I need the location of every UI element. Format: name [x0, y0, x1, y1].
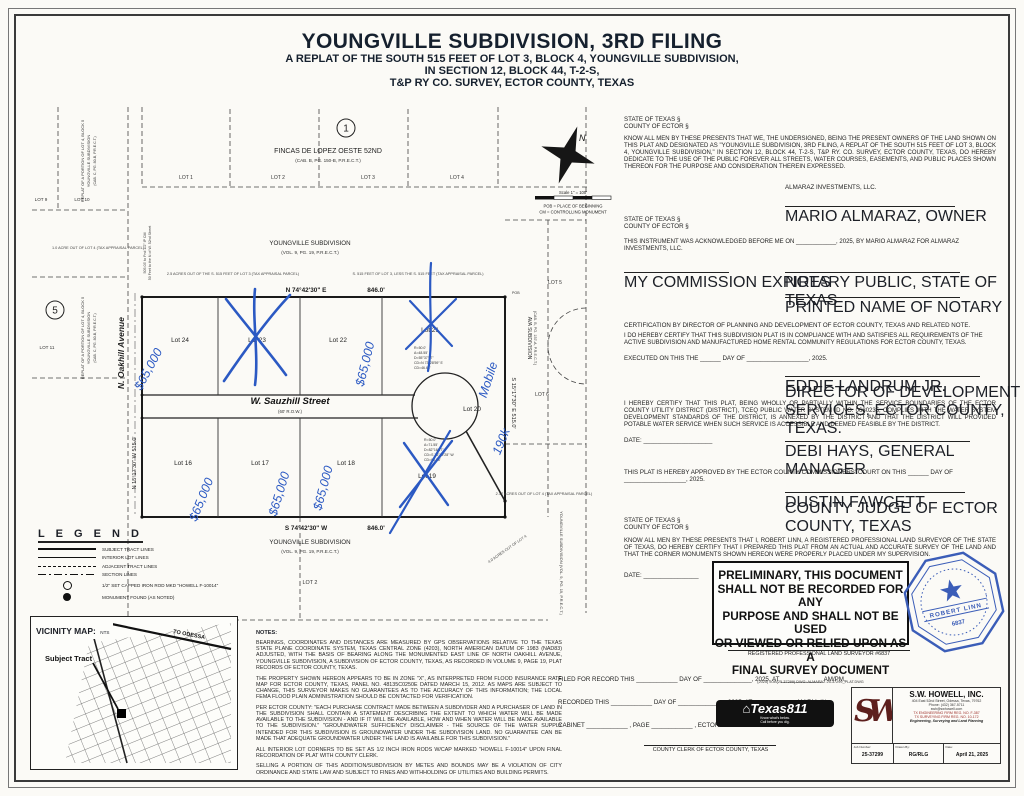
vicinity-title: VICINITY MAP:: [36, 626, 96, 636]
edge-note-2: 50 Feet to the N of W. 52nd Street: [148, 226, 152, 281]
bearing-left: N 15°17'30" W 515.0': [132, 436, 138, 489]
replat-left-upper: REPLAT OF A PORTION OF LOT 4, BLOCK 5 YO…: [80, 119, 97, 202]
adj-lot-5: LOT 5: [548, 280, 562, 286]
planning-executed: EXECUTED ON THIS THE ______ DAY OF _____…: [624, 355, 828, 362]
firm-drawn-label: Drawn By:: [896, 745, 910, 749]
bearing-top: N 74°42'30" E: [286, 286, 328, 294]
handwritten-price-190k: 190k: [490, 426, 513, 457]
bearing-right: S 15°17'30" E 515.0': [510, 377, 516, 428]
landrum-signature-line: [785, 376, 980, 377]
pob-marker-label: POB: [512, 291, 520, 295]
youngville-top-label: YOUNGVILLE SUBDIVISION: [269, 240, 350, 247]
note-217ac: 2.17 ACRES OUT OF LOT 4 (TAX APPRAISAL P…: [496, 492, 593, 496]
page-subtitle-2: IN SECTION 12, BLOCK 44, T-2-S,: [40, 65, 984, 77]
dist-bottom: 846.0': [367, 525, 385, 532]
note-paragraph-5: SELLING A PORTION OF THIS ADDITION/SUBDI…: [256, 763, 562, 775]
fincas-recording: (CAB. B, PG. 150-B, P.R.E.C.T.): [295, 158, 361, 163]
scale-bar: Scale 1" = 100': [535, 190, 611, 200]
preliminary-line-3: PURPOSE AND SHALL NOT BE USED: [714, 610, 907, 637]
lot-18-label: Lot 18: [337, 460, 355, 467]
clerk-signature-line: [644, 745, 776, 746]
street-oakhill-label: N. Oakhill Avenue: [116, 317, 126, 389]
firm-job-label: Job Number:: [854, 745, 872, 749]
note-1ac: 1.0 ACRE OUT OF LOT 4 (TAX APPRAISAL PAR…: [52, 246, 145, 250]
planning-cert-title: CERTIFICATION BY DIRECTOR OF PLANNING AN…: [624, 322, 996, 329]
bearing-bottom: S 74°42'30" W: [285, 524, 328, 532]
svg-text:A=71.55': A=71.55': [424, 443, 438, 447]
lot-22-label: Lot 22: [329, 337, 347, 344]
note-25ac: 2.5 ACRES OUT OF THE S. 515 FEET OF LOT …: [167, 272, 300, 276]
note-paragraph-2: THE PROPERTY SHOWN HEREON APPEARS TO BE …: [256, 676, 562, 701]
firm-date-cell: Date: April 21, 2025: [944, 744, 1000, 764]
legend: L E G E N D SUBJECT TRACT LINES INTERIOR…: [38, 524, 243, 601]
lot-16-label: Lot 16: [174, 460, 192, 467]
svg-text:YOUNGVILLE SUBDIVISION: YOUNGVILLE SUBDIVISION: [86, 312, 91, 365]
preliminary-stamp-box: PRELIMINARY, THIS DOCUMENT SHALL NOT BE …: [712, 561, 909, 645]
dedication-state: STATE OF TEXAS §: [624, 116, 680, 123]
seal-number: 6837: [951, 619, 966, 628]
svg-text:D=82°16'47": D=82°16'47": [424, 448, 444, 452]
legend-line-subject: [38, 548, 96, 550]
handwritten-price-lot24: $65,000: [131, 346, 165, 393]
judge-signature-line: [785, 492, 965, 493]
lot-24-label: Lot 24: [171, 337, 189, 344]
swh-logo-text: SWH: [854, 694, 893, 729]
svg-text:R=50.0': R=50.0': [414, 346, 426, 350]
vicinity-map-drawing: TO ODESSA Subject Tract: [31, 617, 234, 766]
planning-cert-body: I DO HEREBY CERTIFY THAT THIS SUBDIVISIO…: [624, 333, 996, 347]
clerk-label: COUNTY CLERK OF ECTOR COUNTY, TEXAS: [628, 747, 793, 753]
adj-lot-9: LOT 9: [35, 197, 48, 202]
owner-company: ALMARAZ INVESTMENTS, LLC.: [785, 184, 876, 191]
handwritten-price-lot22: $65,000: [353, 340, 378, 388]
svg-text:(CAB. C, PG. 80-B, P.R.E.C.T.): (CAB. C, PG. 80-B, P.R.E.C.T.): [93, 136, 97, 185]
subject-tract-marker: [117, 709, 126, 718]
pob-definition: POB = PLACE OF BEGINNING: [544, 204, 603, 209]
firm-name: S.W. HOWELL, INC.: [893, 690, 1000, 699]
legend-open-circle-icon: [63, 581, 72, 590]
page-subtitle-3: T&P RY CO. SURVEY, ECTOR COUNTY, TEXAS: [40, 77, 984, 89]
youngville-top-recording: (VOL. 9, PG. 19, P.R.E.C.T.): [281, 250, 339, 255]
notes-title: NOTES:: [256, 630, 562, 636]
subject-tract-label: Subject Tract: [45, 654, 93, 663]
handwritten-mobile: Mobile: [476, 360, 501, 399]
vicinity-map: TO ODESSA Subject Tract VICINITY MAP: NT…: [30, 616, 238, 770]
north-arrow-icon: N: [532, 118, 604, 192]
dist-top: 846.0': [367, 287, 385, 294]
svg-text:REPLAT OF A PORTION OF LOT 4,: REPLAT OF A PORTION OF LOT 4, BLOCK 5: [80, 119, 85, 202]
firm-date-label: Date:: [946, 745, 953, 749]
notary-acknowledgment: THIS INSTRUMENT WAS ACKNOWLEDGED BEFORE …: [624, 239, 996, 253]
dedication-body: KNOW ALL MEN BY THESE PRESENTS THAT WE, …: [624, 136, 996, 171]
lot-17-label: Lot 17: [251, 460, 269, 467]
legend-filled-circle-icon: [63, 593, 71, 601]
youngville-right-vert: YOUNGVILLE SUBDIVISION (VOL. 9, PG. 19, …: [559, 511, 564, 615]
vicinity-title-row: VICINITY MAP: NTS: [36, 621, 113, 639]
surveyor-seal: ROBERT LINN 6837: [901, 549, 1007, 655]
lot-20-label: Lot 20: [463, 406, 481, 413]
svg-text:Scale 1" = 100': Scale 1" = 100': [559, 190, 587, 195]
firm-logo: SWH: [852, 688, 893, 743]
dedication-county: COUNTY OF ECTOR §: [624, 123, 689, 130]
preliminary-line-1: PRELIMINARY, THIS DOCUMENT: [714, 569, 907, 583]
crossout-lot23-v: [254, 289, 256, 385]
page-subtitle-1: A REPLAT OF THE SOUTH 515 FEET OF LOT 3,…: [40, 53, 984, 65]
firm-job-cell: Job Number: 25-37299: [852, 744, 894, 764]
owner-signature-line: [785, 206, 955, 207]
firm-title-block: SWH S.W. HOWELL, INC. 404 East 52nd Stre…: [851, 687, 1001, 764]
title-block: YOUNGVILLE SUBDIVISION, 3RD FILING A REP…: [40, 30, 984, 89]
note-paragraph-4: ALL INTERIOR LOT CORNERS TO BE SET AS 1/…: [256, 747, 562, 759]
surveyor-reg-label: REGISTERED PROFESSIONAL LAND SURVEYOR #6…: [728, 651, 910, 657]
notary-state: STATE OF TEXAS §: [624, 216, 680, 223]
legend-label-subject: SUBJECT TRACT LINES: [102, 547, 154, 552]
replat-left-lower: REPLAT OF A PORTION OF LOT 4, BLOCK 5 YO…: [80, 296, 97, 379]
cm-definition: CM = CONTROLLING MONUMENT: [539, 210, 607, 215]
legend-label-section: SECTION LINES: [102, 572, 137, 577]
surveyor-date: DATE: ________________: [624, 572, 699, 579]
notary-public-line: [785, 272, 960, 273]
adj-lot-6: LOT 6: [535, 392, 549, 398]
crossout-lot21-v: [428, 263, 431, 371]
ava-subdivision-label: AVA SUBDIVISION (CAB. B, PG. 157-A, P.R.…: [526, 311, 537, 366]
svg-text:AVA SUBDIVISION: AVA SUBDIVISION: [526, 317, 532, 360]
street-sauzhill-label: W. Sauzhill Street: [250, 396, 330, 407]
adj-lot-4: LOT 4: [450, 175, 464, 181]
adj-lot-2-bottom: LOT 2: [303, 580, 318, 586]
adj-lot-2: LOT 2: [271, 175, 285, 181]
svg-text:A=48.55': A=48.55': [414, 351, 428, 355]
svg-text:D=55°37'57": D=55°37'57": [414, 356, 434, 360]
notes-section: NOTES: BEARINGS, COORDINATES AND DISTANC…: [256, 630, 562, 780]
svg-text:(CAB. C, PG. 80-B, P.R.E.C.T.): (CAB. C, PG. 80-B, P.R.E.C.T.): [93, 313, 97, 362]
note-paragraph-1: BEARINGS, COORDINATES AND DISTANCES ARE …: [256, 640, 562, 671]
texas811-name: Texas811: [750, 701, 807, 716]
svg-text:REPLAT OF A PORTION OF LOT 4,: REPLAT OF A PORTION OF LOT 4, BLOCK 5: [80, 296, 85, 379]
section-marker-1: 1: [343, 124, 349, 135]
adj-lot-1: LOT 1: [179, 175, 193, 181]
firm-tagline: Engineering, Surveying and Land Planning: [893, 719, 1000, 723]
handwritten-price-lot17: $65,000: [266, 470, 293, 518]
notary-county: COUNTY OF ECTOR §: [624, 223, 689, 230]
plat-sheet: YOUNGVILLE SUBDIVISION, 3RD FILING A REP…: [0, 0, 1024, 796]
firm-job-number: 25-37299: [852, 752, 893, 758]
page-title: YOUNGVILLE SUBDIVISION, 3RD FILING: [40, 30, 984, 53]
water-date: DATE: ____________________: [624, 437, 712, 444]
surveyor-county: COUNTY OF ECTOR §: [624, 524, 689, 531]
adj-lot-11: LOT 11: [40, 345, 55, 350]
adj-lot-3: LOT 3: [361, 175, 375, 181]
legend-title: L E G E N D: [38, 528, 143, 543]
youngville-bottom-label: YOUNGVILLE SUBDIVISION: [269, 539, 350, 546]
legend-label-monument: MONUMENT FOUND (AS NOTED): [102, 595, 174, 600]
legend-label-set-rod: 1/2" SET CAPPED IRON ROD MKD "HOWELL F-1…: [102, 583, 218, 588]
texas811-logo: ⌂Texas811 Know what's below. Call before…: [716, 700, 834, 727]
svg-text:R=50.0': R=50.0': [424, 438, 436, 442]
vicinity-nts: NTS: [100, 630, 109, 635]
note-4ac: 4.0 ACRES OUT OF LOT 4: [487, 534, 527, 564]
handwritten-price-lot18: $65,000: [310, 464, 335, 512]
debi-signature-line: [785, 441, 970, 442]
legend-line-adjacent: [38, 566, 96, 567]
fincas-label: FINCAS DE LOPEZ OESTE 52ND: [274, 148, 382, 155]
firm-drawn-cell: Drawn By: RG/RLG: [894, 744, 944, 764]
texas811-tag2: Call before you dig.: [716, 721, 834, 725]
youngville-bottom-recording: (VOL. 9, PG. 19, P.R.E.C.T.): [281, 549, 339, 554]
svg-text:(CAB. B, PG. 157-A, P.R.E.C.T.: (CAB. B, PG. 157-A, P.R.E.C.T.): [533, 311, 537, 366]
printed-notary-line: [785, 297, 960, 298]
commission-line: [624, 272, 729, 273]
note-515: S. 515 FEET OF LOT 3, LESS THE S. 515 FE…: [352, 272, 484, 276]
filed-line: FILED FOR RECORD THIS ____________ DAY O…: [558, 676, 846, 683]
street-row-label: (60' R.O.W.): [278, 409, 303, 414]
svg-text:N: N: [579, 133, 586, 143]
preliminary-line-2: SHALL NOT BE RECORDED FOR ANY: [714, 583, 907, 610]
firm-drawn-by: RG/RLG: [894, 752, 943, 758]
water-cert-body: I HEREBY CERTIFY THAT THIS PLAT, BEING W…: [624, 401, 996, 429]
court-approval: THIS PLAT IS HEREBY APPROVED BY THE ECTO…: [624, 469, 996, 483]
interior-lot-lines: [218, 297, 382, 517]
firm-date: April 21, 2025: [944, 752, 1000, 758]
section-marker-5: 5: [52, 306, 58, 317]
printed-notary-label: PRINTED NAME OF NOTARY: [785, 299, 1002, 317]
owner-signature-label: MARIO ALMARAZ, OWNER: [785, 208, 987, 226]
svg-text:YOUNGVILLE SUBDIVISION: YOUNGVILLE SUBDIVISION: [86, 135, 91, 188]
surveyor-state: STATE OF TEXAS §: [624, 517, 680, 524]
legend-line-interior: [38, 557, 96, 558]
handwritten-annotations: $65,000 $65,000 $65,000 $65,000 $65,000 …: [131, 340, 513, 524]
legend-line-section: [38, 574, 96, 575]
legend-label-adjacent: ADJACENT TRACT LINES: [102, 564, 157, 569]
note-paragraph-3: PER ECTOR COUNTY: "EACH PURCHASE CONTRAC…: [256, 705, 562, 742]
edge-note-1: 505.03' to Fnd 1/2" IP CM: [143, 232, 147, 273]
judge-role: COUNTY JUDGE OF ECTOR COUNTY, TEXAS: [785, 500, 1024, 536]
legend-label-interior: INTERIOR LOT LINES: [102, 555, 149, 560]
